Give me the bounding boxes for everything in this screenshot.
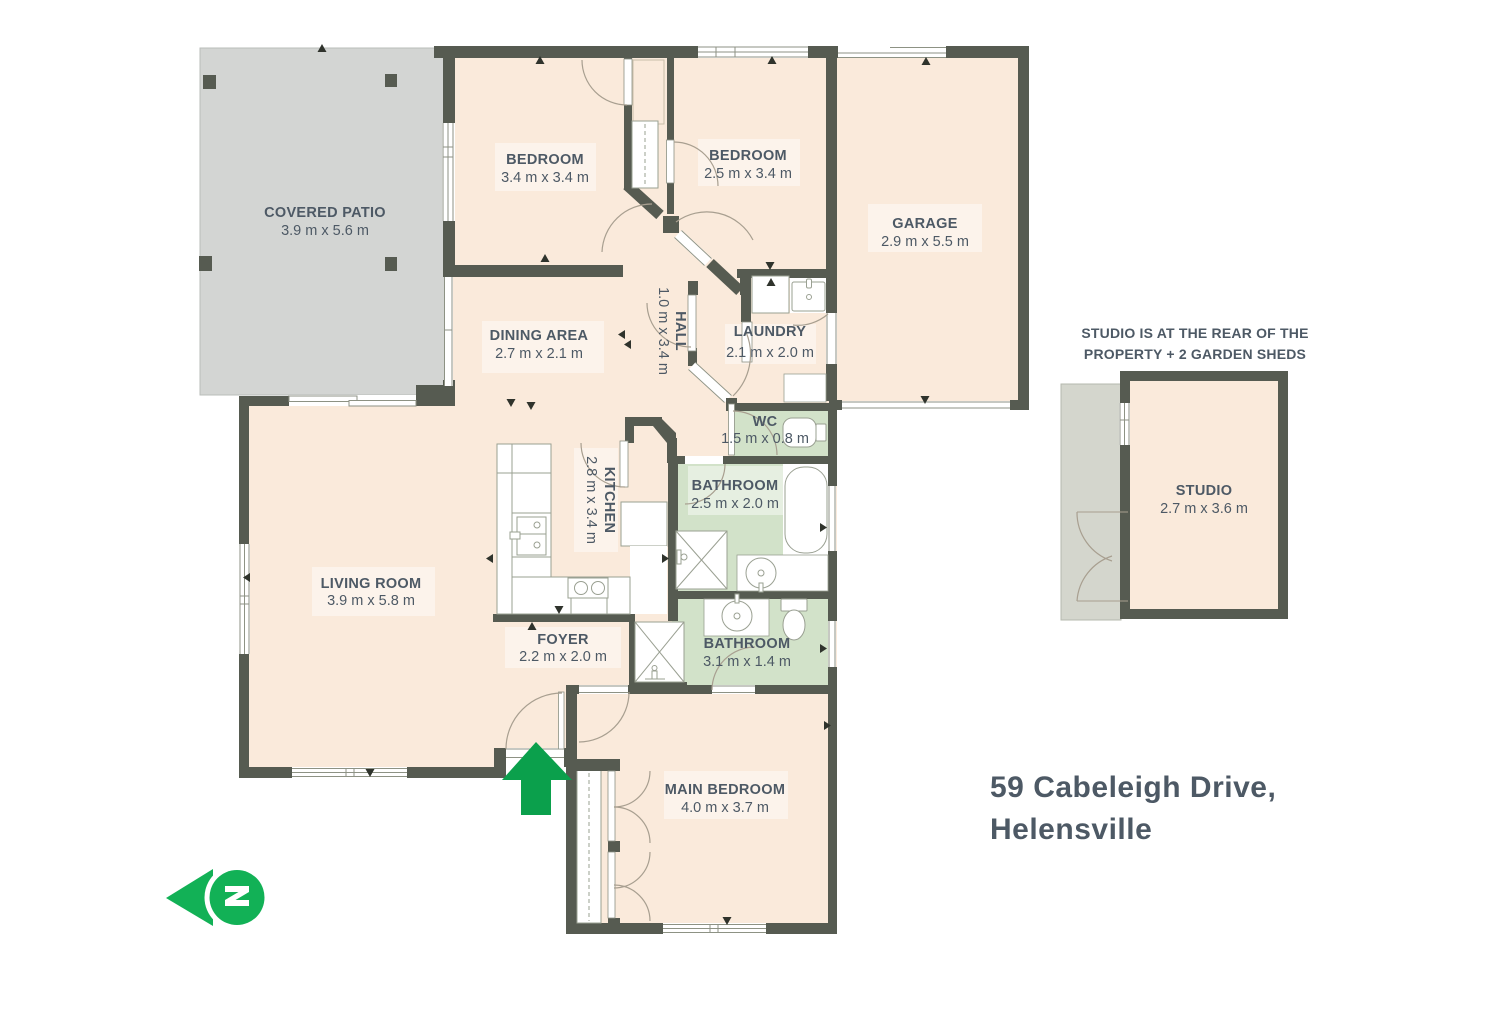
svg-text:1.0 m x 3.4 m: 1.0 m x 3.4 m (655, 287, 671, 375)
svg-text:BEDROOM: BEDROOM (506, 152, 584, 168)
svg-text:WC: WC (753, 414, 778, 430)
svg-text:2.7 m x 3.6 m: 2.7 m x 3.6 m (1160, 501, 1248, 517)
svg-text:BATHROOM: BATHROOM (692, 478, 779, 494)
svg-text:LIVING ROOM: LIVING ROOM (321, 576, 422, 592)
svg-text:2.8 m x 3.4 m: 2.8 m x 3.4 m (583, 456, 599, 544)
svg-text:1.5 m x 0.8 m: 1.5 m x 0.8 m (721, 431, 809, 447)
svg-text:FOYER: FOYER (537, 632, 589, 648)
svg-text:LAUNDRY: LAUNDRY (734, 324, 806, 340)
svg-text:STUDIO: STUDIO (1176, 483, 1233, 499)
svg-text:2.1 m x 2.0 m: 2.1 m x 2.0 m (726, 345, 814, 361)
svg-text:MAIN BEDROOM: MAIN BEDROOM (665, 782, 785, 798)
svg-text:2.7 m x 2.1 m: 2.7 m x 2.1 m (495, 346, 583, 362)
svg-text:BEDROOM: BEDROOM (709, 148, 787, 164)
svg-text:59 Cabeleigh Drive,: 59 Cabeleigh Drive, (990, 771, 1276, 804)
svg-text:PROPERTY + 2 GARDEN SHEDS: PROPERTY + 2 GARDEN SHEDS (1084, 346, 1306, 362)
svg-text:BATHROOM: BATHROOM (704, 636, 791, 652)
svg-text:2.5 m x 3.4 m: 2.5 m x 3.4 m (704, 166, 792, 182)
svg-text:HALL: HALL (672, 311, 688, 351)
svg-text:KITCHEN: KITCHEN (601, 467, 617, 534)
svg-text:3.4 m x 3.4 m: 3.4 m x 3.4 m (501, 170, 589, 186)
svg-text:Helensville: Helensville (990, 813, 1152, 846)
svg-text:DINING AREA: DINING AREA (490, 328, 589, 344)
svg-text:2.5 m x 2.0 m: 2.5 m x 2.0 m (691, 496, 779, 512)
svg-text:STUDIO IS AT THE REAR OF THE: STUDIO IS AT THE REAR OF THE (1081, 325, 1308, 341)
svg-text:2.2 m x 2.0 m: 2.2 m x 2.0 m (519, 649, 607, 665)
svg-text:COVERED PATIO: COVERED PATIO (264, 205, 386, 221)
svg-text:2.9 m x 5.5 m: 2.9 m x 5.5 m (881, 234, 969, 250)
svg-text:GARAGE: GARAGE (892, 216, 957, 232)
svg-text:3.9 m x 5.6 m: 3.9 m x 5.6 m (281, 223, 369, 239)
svg-text:3.9 m x 5.8 m: 3.9 m x 5.8 m (327, 593, 415, 609)
svg-text:3.1 m x 1.4 m: 3.1 m x 1.4 m (703, 654, 791, 670)
svg-text:4.0 m x 3.7 m: 4.0 m x 3.7 m (681, 800, 769, 816)
